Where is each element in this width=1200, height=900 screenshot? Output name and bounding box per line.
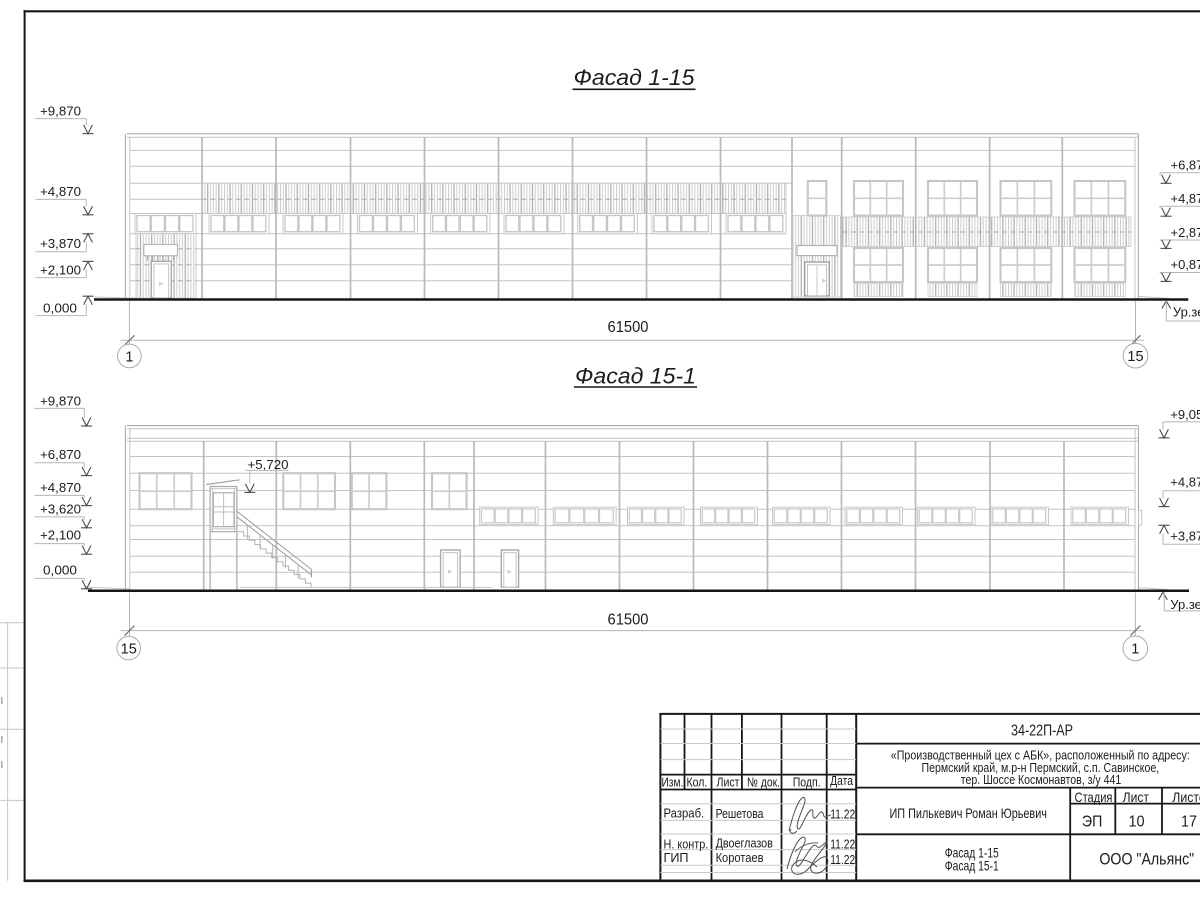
svg-text:Двоеглазов: Двоеглазов: [716, 836, 773, 851]
svg-text:11.22: 11.22: [830, 806, 855, 821]
svg-text:+2,100: +2,100: [40, 262, 81, 277]
svg-text:+4,870: +4,870: [40, 184, 81, 199]
svg-text:Листов: Листов: [1172, 789, 1200, 805]
svg-text:Стадия: Стадия: [1075, 789, 1113, 805]
svg-text:+5,720: +5,720: [248, 457, 289, 472]
svg-text:+2,870: +2,870: [1171, 225, 1200, 240]
svg-text:Дата: Дата: [830, 773, 854, 788]
svg-text:+9,870: +9,870: [40, 104, 81, 119]
svg-text:Подп.: Подп.: [793, 774, 821, 789]
svg-text:Коротаев: Коротаев: [716, 850, 764, 865]
svg-text:+4,870: +4,870: [1171, 191, 1200, 206]
svg-text:Лист: Лист: [1123, 789, 1150, 805]
svg-text:Изм.: Изм.: [662, 774, 684, 789]
svg-text:+3,870: +3,870: [40, 236, 81, 251]
svg-text:тер. Шоссе Космонавтов, з/у 44: тер. Шоссе Космонавтов, з/у 441: [961, 773, 1122, 787]
svg-text:+4,870: +4,870: [1170, 475, 1200, 490]
svg-text:+4,870: +4,870: [40, 480, 81, 495]
svg-text:+2,100: +2,100: [40, 528, 81, 543]
svg-text:17: 17: [1181, 814, 1197, 831]
svg-text:Фасад 15-1: Фасад 15-1: [945, 857, 999, 873]
svg-text:10: 10: [1128, 814, 1144, 831]
svg-text:61500: 61500: [608, 319, 649, 336]
svg-text:Решетова: Решетова: [716, 806, 765, 821]
svg-text:Фасад 15-1: Фасад 15-1: [575, 364, 696, 389]
svg-text:Фасад 1-15: Фасад 1-15: [574, 65, 695, 90]
svg-text:Кол.: Кол.: [687, 774, 708, 789]
svg-text:ГИП: ГИП: [664, 850, 689, 865]
svg-text:ЭП: ЭП: [1082, 814, 1102, 831]
svg-text:+0,870: +0,870: [1171, 257, 1200, 272]
svg-text:Разраб.: Разраб.: [664, 805, 705, 820]
svg-text:№ док.: № док.: [747, 774, 780, 789]
svg-text:0,000: 0,000: [43, 300, 77, 315]
svg-text:1: 1: [1131, 642, 1139, 658]
svg-text:+6,870: +6,870: [1171, 158, 1200, 173]
svg-text:15: 15: [1127, 349, 1143, 365]
svg-text:Ур.земли: Ур.земли: [1173, 305, 1200, 320]
svg-text:34-22П-АР: 34-22П-АР: [1011, 722, 1073, 739]
svg-text:+6,870: +6,870: [40, 447, 81, 462]
svg-text:+9,870: +9,870: [40, 394, 81, 409]
svg-text:11.22: 11.22: [830, 852, 855, 867]
svg-text:0,000: 0,000: [43, 563, 77, 578]
svg-text:Ур.земли: Ур.земли: [1170, 597, 1200, 612]
svg-text:ИП Пилькевич Роман Юрьевич: ИП Пилькевич Роман Юрьевич: [889, 805, 1047, 821]
svg-text:11.22: 11.22: [830, 837, 855, 852]
svg-text:1: 1: [125, 349, 133, 365]
svg-text:+3,620: +3,620: [40, 502, 81, 517]
svg-text:+3,870: +3,870: [1170, 529, 1200, 544]
svg-text:61500: 61500: [608, 611, 649, 628]
svg-text:Лист: Лист: [717, 774, 740, 789]
svg-text:15: 15: [121, 642, 137, 658]
svg-text:+9,050: +9,050: [1170, 407, 1200, 422]
svg-text:ООО "Альянс": ООО "Альянс": [1099, 851, 1194, 869]
